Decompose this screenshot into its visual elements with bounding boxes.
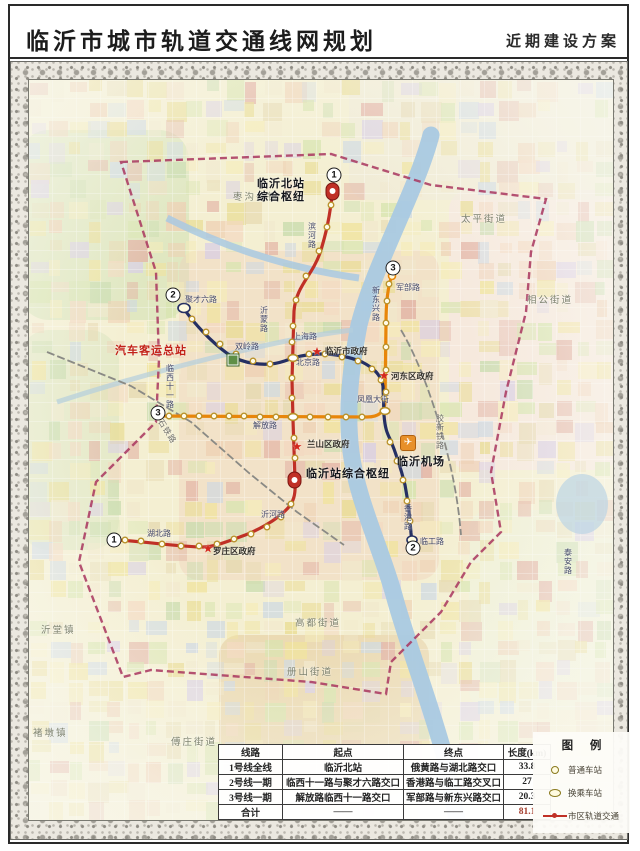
- table-header-row: 线路 起点 终点 长度(km): [219, 745, 551, 760]
- map-label: 军部路: [396, 283, 420, 292]
- map-label: 湖北路: [147, 529, 171, 538]
- cell: 俄黄路与湖北路交口: [404, 760, 504, 775]
- map-label: 临沂站综合枢纽: [306, 468, 390, 481]
- line-terminus-badge: 2: [406, 541, 421, 556]
- map-label: 高都街道: [295, 618, 341, 629]
- legend-symbol-wrap: [542, 789, 568, 797]
- table-row: 3号线一期 解放路临西十一路交口 军部路与新东兴路交口 20.3: [219, 790, 551, 805]
- page-subtitle: 近期建设方案: [506, 30, 620, 51]
- map-label: 临沂机场: [397, 456, 445, 469]
- cell: 3号线一期: [219, 790, 283, 805]
- header-cell: 起点: [283, 745, 404, 760]
- government-star-icon: [203, 542, 214, 554]
- line-terminus-badge: 3: [151, 406, 166, 421]
- table-total-row: 合计 —— —— 81.1: [219, 805, 551, 820]
- cell: 香港路与临工路交叉口: [404, 775, 504, 790]
- map-label: 双岭路: [235, 342, 259, 351]
- map-label: 香港路: [403, 504, 412, 531]
- map-label: 沂河路: [261, 510, 285, 519]
- map-label: 聚才六路: [185, 295, 217, 304]
- legend-label: 普通车站: [568, 764, 602, 776]
- airport-icon: [400, 435, 416, 451]
- government-star-icon: [292, 440, 303, 452]
- map-annotations: 枣沟头镇太平街道相公街道沂堂镇高都街道册山街道傅庄街道褚墩镇临沂北站 综合枢纽汽…: [29, 80, 613, 820]
- transfer-station-icon: [549, 789, 561, 797]
- map-label: 滨河路: [307, 222, 316, 249]
- cell: ——: [283, 805, 404, 820]
- rail-line-icon: [543, 815, 567, 817]
- map-label: 凤凰大街: [357, 395, 389, 404]
- city-map: 枣沟头镇太平街道相公街道沂堂镇高都街道册山街道傅庄街道褚墩镇临沂北站 综合枢纽汽…: [28, 79, 614, 821]
- bus-terminal-icon: [228, 355, 239, 366]
- map-label: 解放路: [253, 421, 277, 430]
- line-terminus-badge: 1: [327, 168, 342, 183]
- cell: 临西十一路与聚才六路交口: [283, 775, 404, 790]
- map-label: 兰山区政府: [307, 439, 350, 449]
- page-title: 临沂市城市轨道交通线网规划: [26, 22, 377, 56]
- cell: 2号线一期: [219, 775, 283, 790]
- ordinary-station-icon: [551, 766, 559, 774]
- map-label: 傅庄街道: [171, 737, 217, 748]
- cell: 合计: [219, 805, 283, 820]
- map-label: 临工路: [420, 537, 444, 546]
- header-cell: 线路: [219, 745, 283, 760]
- legend-item: 普通车站: [542, 764, 626, 776]
- map-label: 北京路: [296, 358, 320, 367]
- table-row: 2号线一期 临西十一路与聚才六路交口 香港路与临工路交叉口 27: [219, 775, 551, 790]
- map-ornamental-border: 枣沟头镇太平街道相公街道沂堂镇高都街道册山街道傅庄街道褚墩镇临沂北站 综合枢纽汽…: [10, 61, 628, 840]
- map-label: 太平街道: [461, 214, 507, 225]
- map-label: 临西十一路: [165, 364, 174, 409]
- cell: 军部路与新东兴路交口: [404, 790, 504, 805]
- legend: 图 例 普通车站 换乘车站 市区轨道交通: [533, 732, 630, 833]
- line-terminus-badge: 3: [386, 261, 401, 276]
- map-label: 胶新铁路: [435, 414, 444, 450]
- map-label: 汽车客运总站: [115, 345, 187, 358]
- legend-symbol-wrap: [542, 766, 568, 774]
- map-label: 临沂北站 综合枢纽: [257, 178, 305, 204]
- legend-label: 换乘车站: [568, 787, 602, 799]
- header-divider: [8, 57, 629, 59]
- line-terminus-badge: 1: [107, 533, 122, 548]
- map-label: 沂蒙路: [259, 306, 268, 333]
- map-label: 上海路: [293, 332, 317, 341]
- map-label: 罗庄区政府: [213, 546, 256, 556]
- map-label: 临沂市政府: [325, 346, 368, 356]
- map-label: 褚墩镇: [33, 728, 68, 739]
- map-label: 新东兴路: [371, 286, 380, 322]
- legend-symbol-wrap: [542, 815, 568, 817]
- table-row: 1号线全线 临沂北站 俄黄路与湖北路交口 33.8: [219, 760, 551, 775]
- cell: 1号线全线: [219, 760, 283, 775]
- cell: 解放路临西十一路交口: [283, 790, 404, 805]
- legend-item: 换乘车站: [542, 787, 626, 799]
- map-label: 相公街道: [527, 295, 573, 306]
- government-star-icon: [312, 345, 323, 357]
- map-label: 泰安路: [563, 548, 572, 575]
- map-label: 河东区政府: [391, 371, 434, 381]
- cell: 临沂北站: [283, 760, 404, 775]
- government-star-icon: [379, 369, 390, 381]
- legend-title: 图 例: [533, 737, 630, 753]
- map-label: 册山街道: [287, 667, 333, 678]
- line-info-table: 线路 起点 终点 长度(km) 1号线全线 临沂北站 俄黄路与湖北路交口 33.…: [218, 744, 551, 820]
- legend-item: 市区轨道交通: [542, 810, 626, 822]
- header-cell: 终点: [404, 745, 504, 760]
- legend-label: 市区轨道交通: [568, 810, 619, 822]
- line-terminus-badge: 2: [166, 288, 181, 303]
- cell: ——: [404, 805, 504, 820]
- map-label: 沂堂镇: [41, 625, 76, 636]
